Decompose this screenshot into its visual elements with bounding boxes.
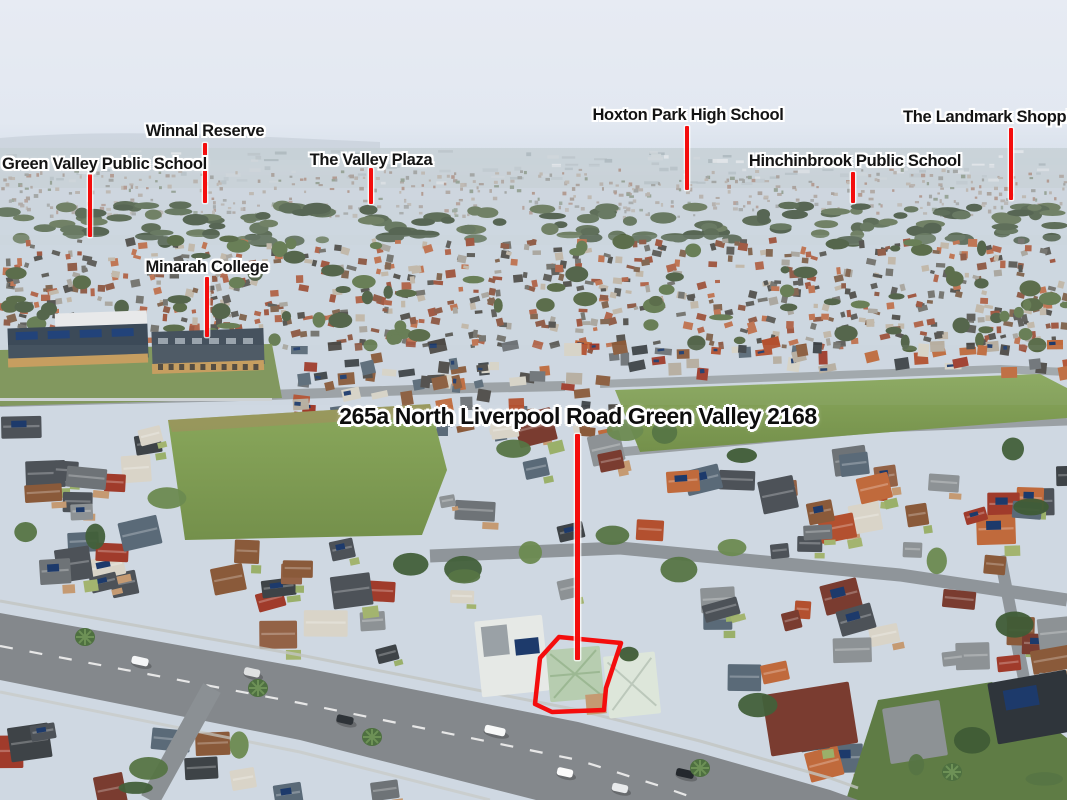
aerial-photo (0, 0, 1067, 800)
aerial-photo-stage: Green Valley Public School Winnal Reserv… (0, 0, 1067, 800)
